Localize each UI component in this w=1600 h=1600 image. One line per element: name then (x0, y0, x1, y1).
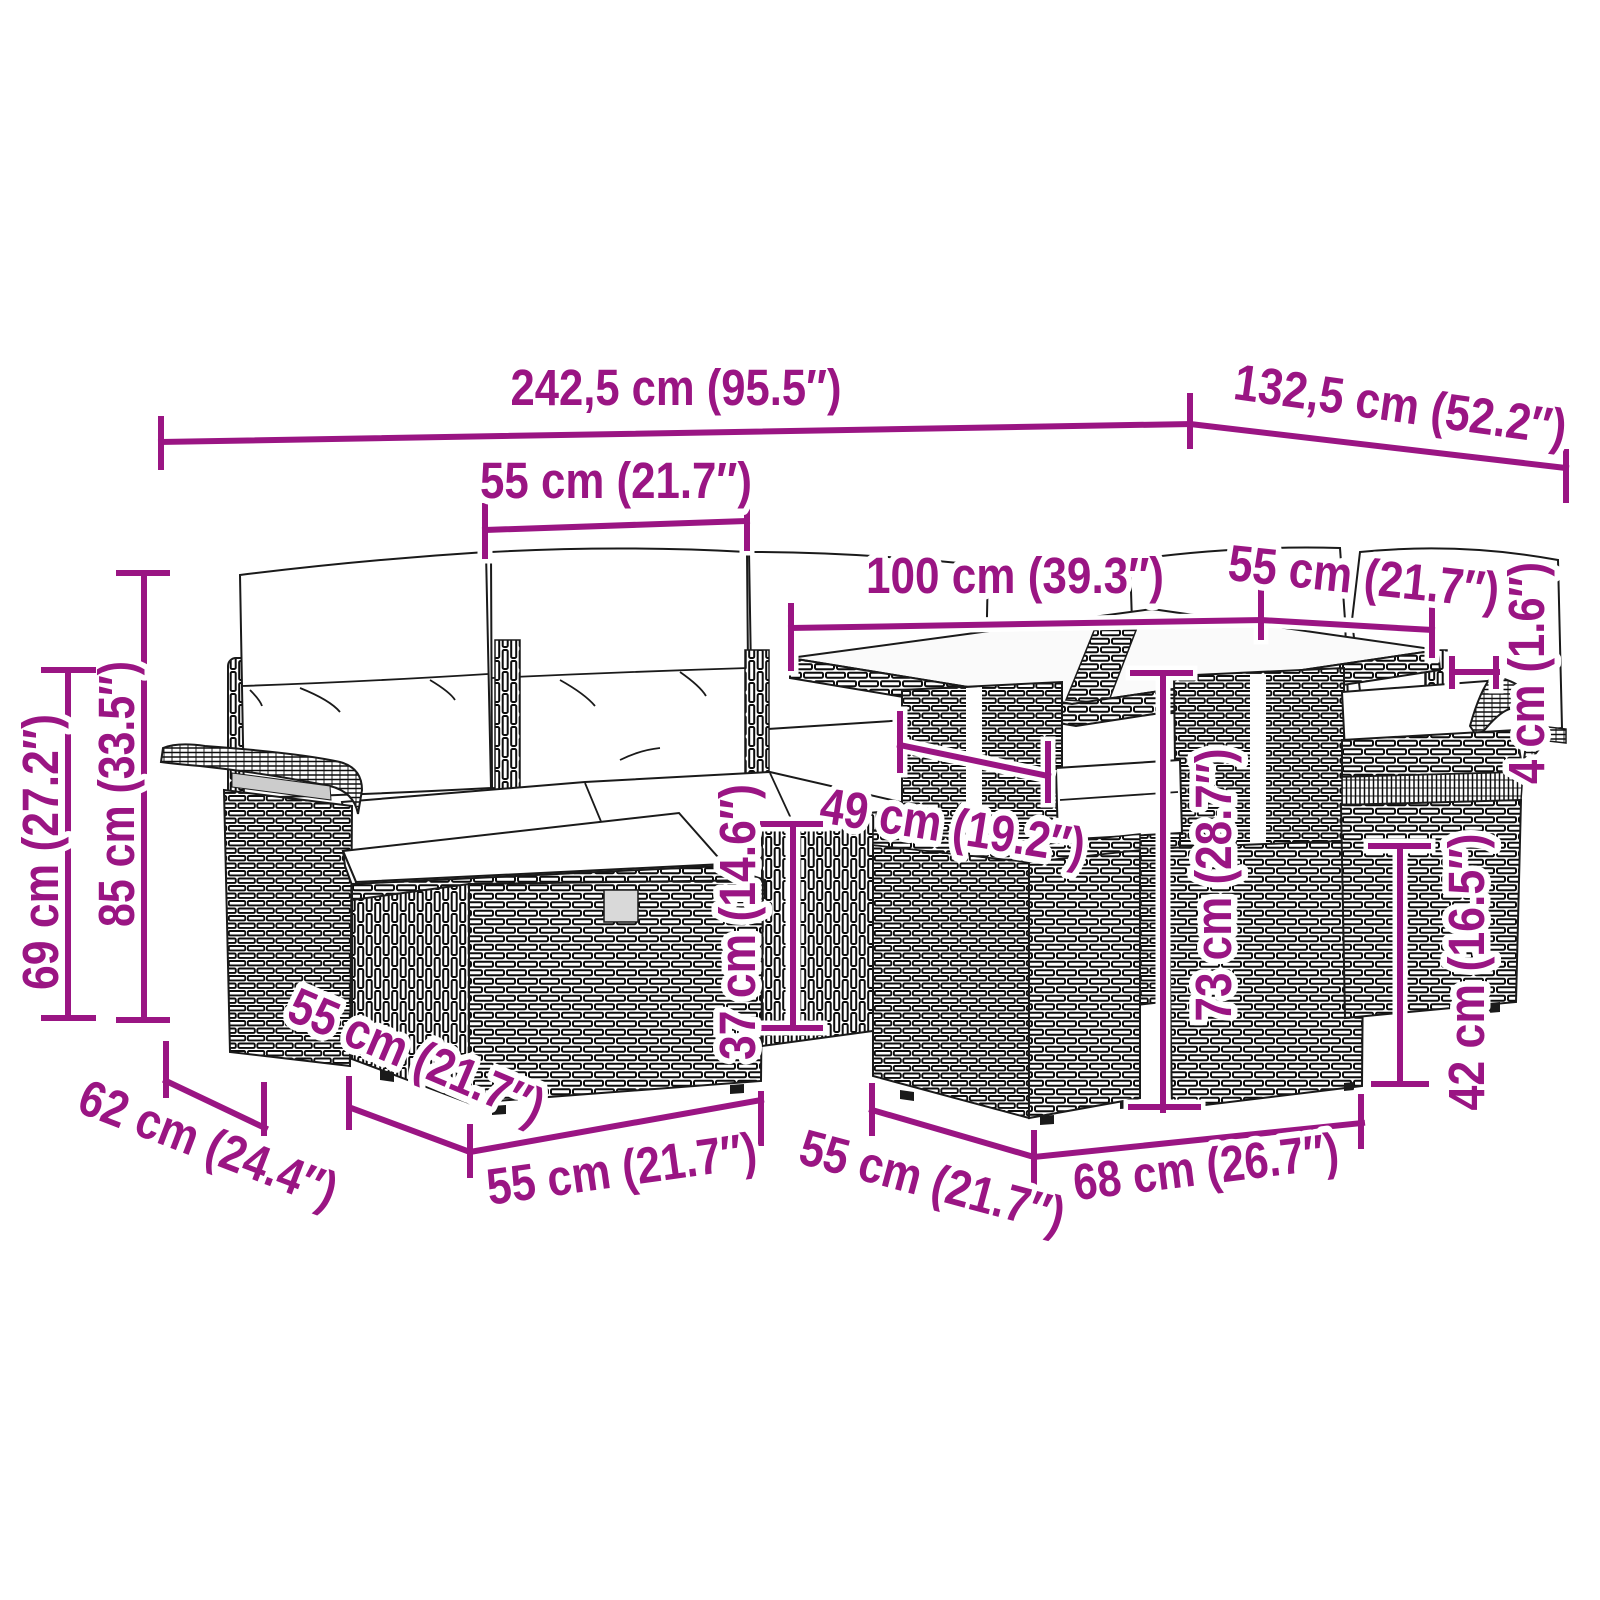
svg-text:4 cm (1.6″): 4 cm (1.6″) (1498, 562, 1555, 784)
svg-text:85 cm (33.5″): 85 cm (33.5″) (88, 661, 145, 927)
svg-text:73 cm (28.7″): 73 cm (28.7″) (1185, 749, 1242, 1022)
svg-text:42 cm (16.5″): 42 cm (16.5″) (1438, 834, 1495, 1111)
svg-text:55 cm (21.7″): 55 cm (21.7″) (480, 452, 752, 509)
svg-text:69 cm (27.2″): 69 cm (27.2″) (12, 714, 69, 990)
svg-text:100 cm (39.3″): 100 cm (39.3″) (866, 547, 1164, 604)
svg-text:37 cm (14.6″): 37 cm (14.6″) (709, 784, 766, 1060)
svg-text:242,5 cm (95.5″): 242,5 cm (95.5″) (511, 359, 842, 416)
